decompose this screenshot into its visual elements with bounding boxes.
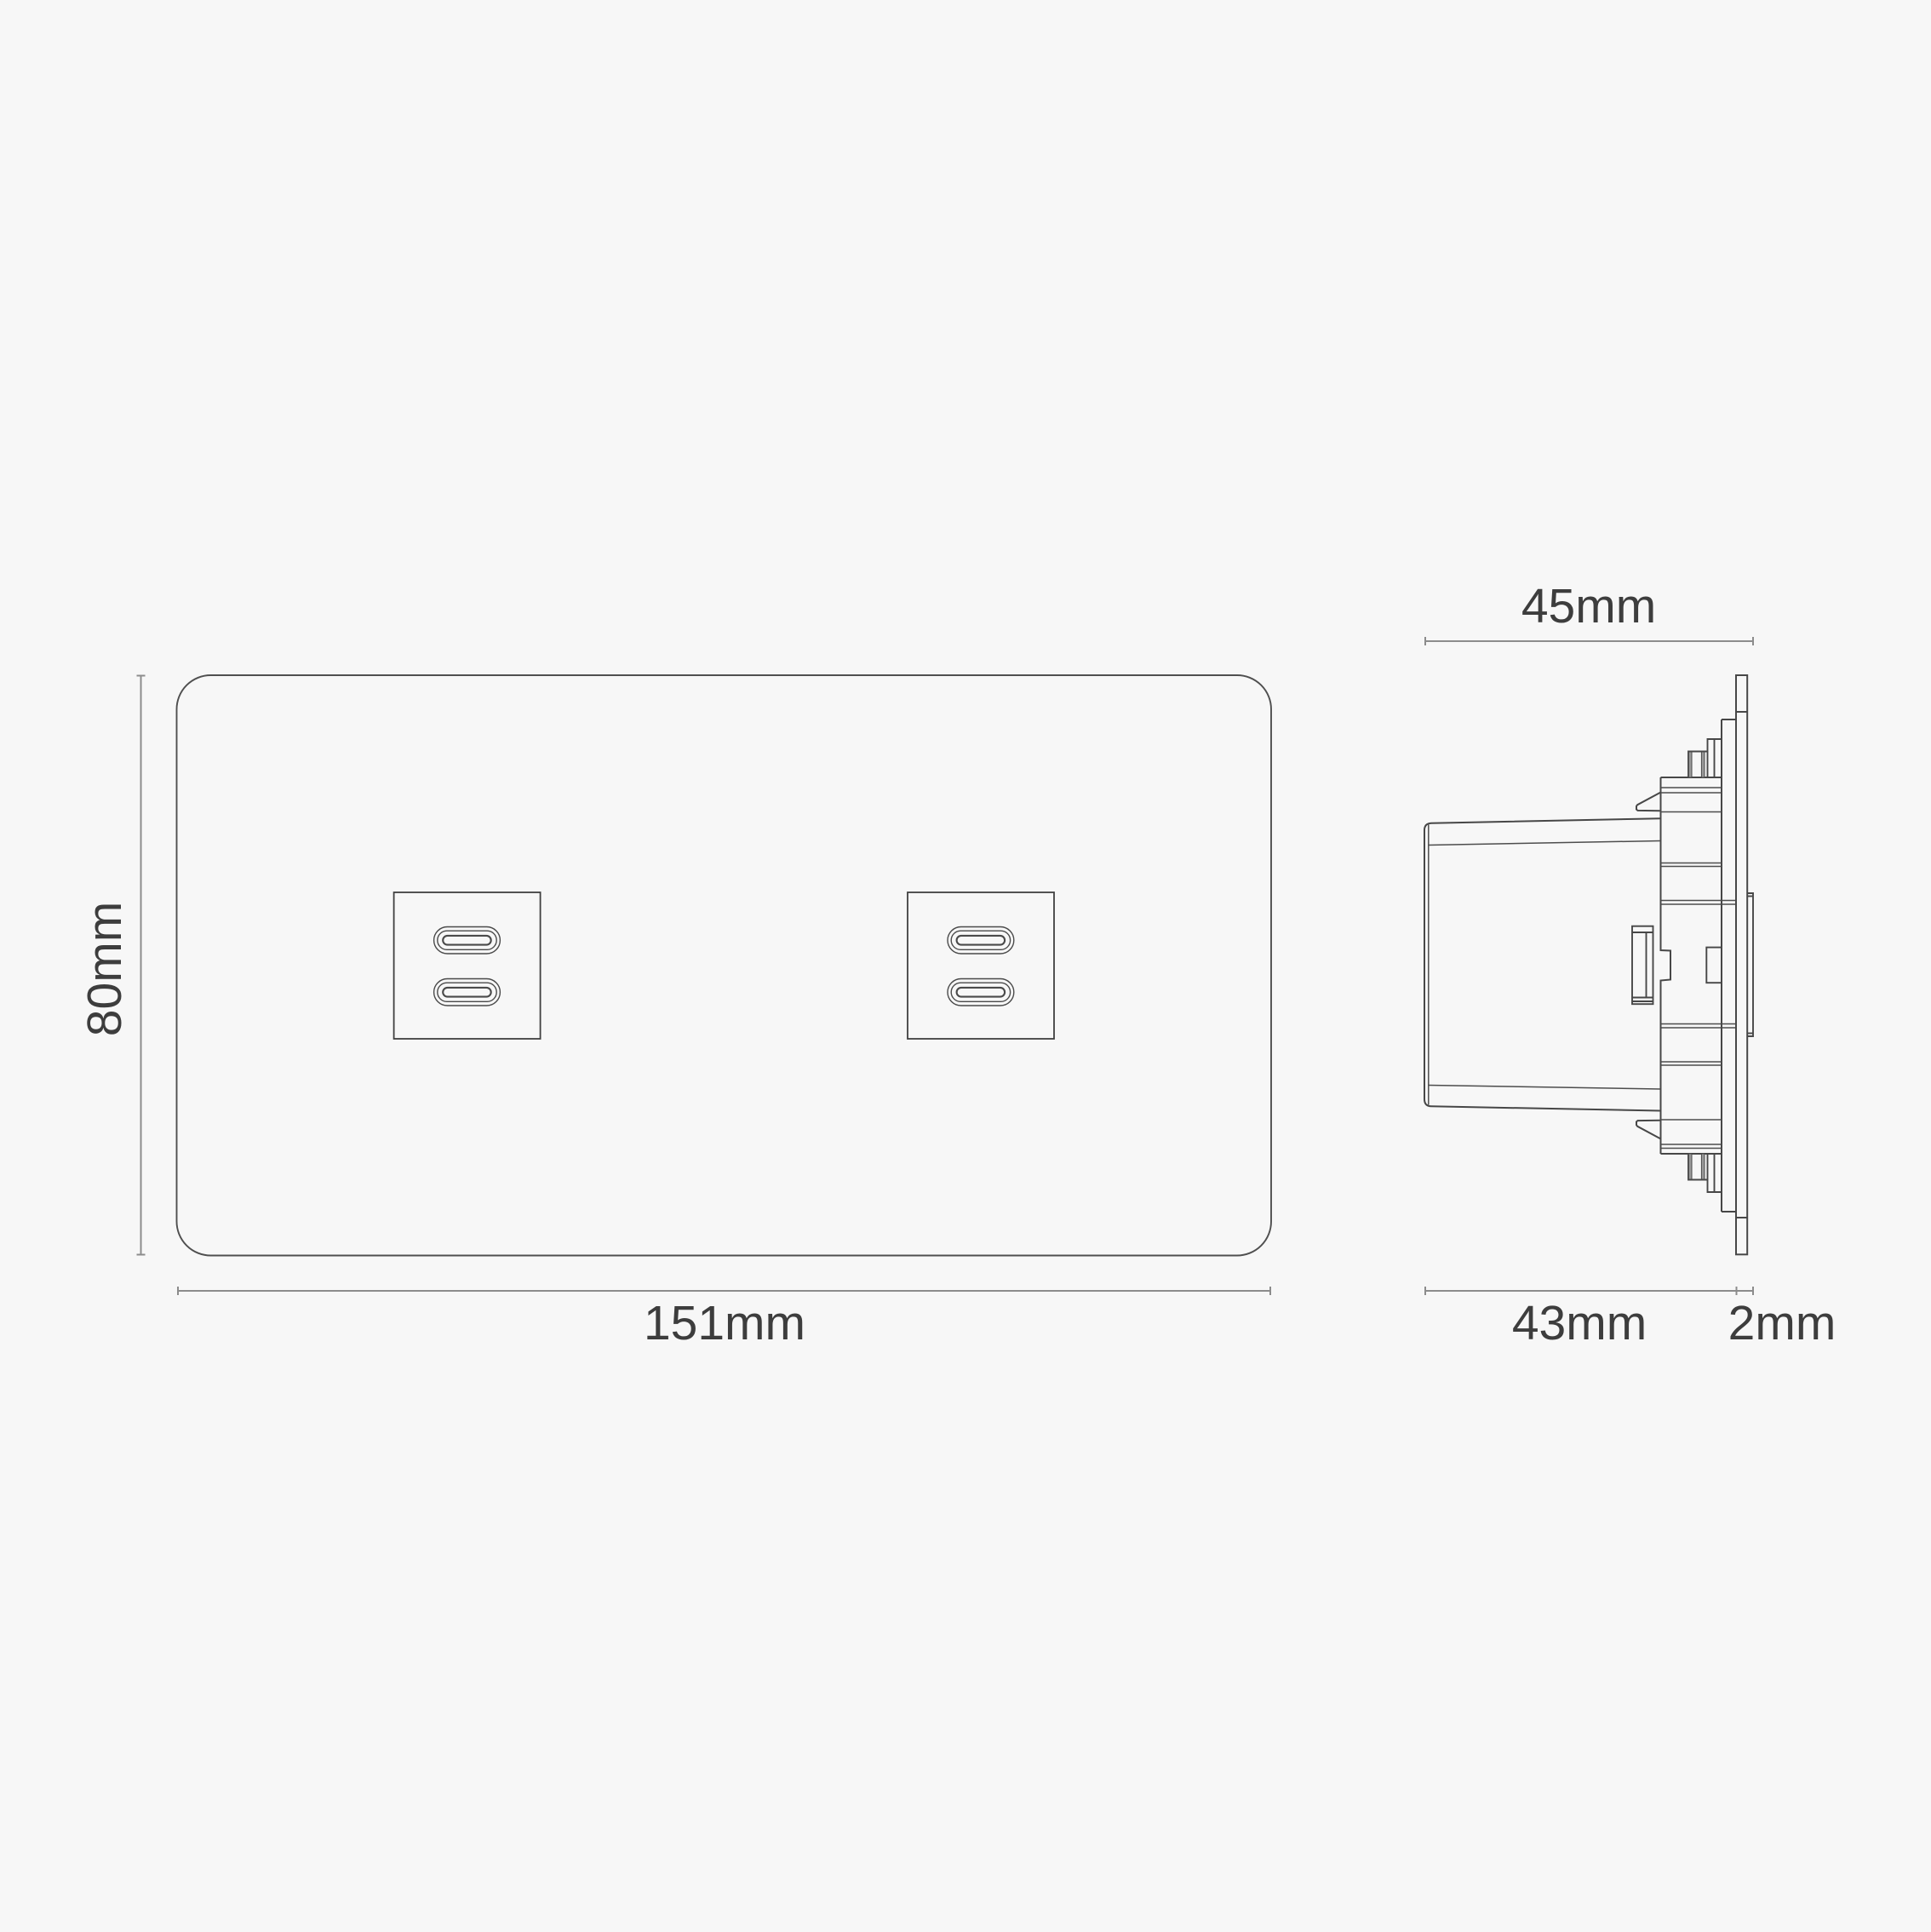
svg-text:80mm: 80mm <box>77 902 132 1036</box>
svg-text:151mm: 151mm <box>644 1296 805 1350</box>
svg-text:2mm: 2mm <box>1728 1296 1836 1350</box>
svg-text:45mm: 45mm <box>1521 579 1656 633</box>
svg-text:43mm: 43mm <box>1512 1296 1647 1350</box>
